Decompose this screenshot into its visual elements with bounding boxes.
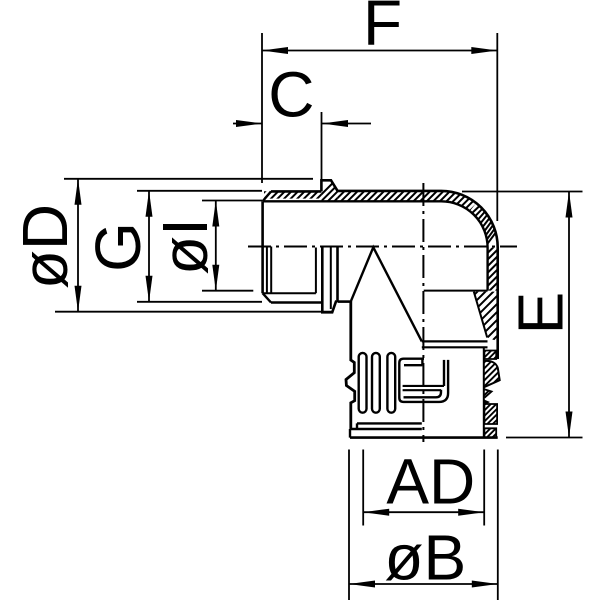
svg-text:G: G xyxy=(82,222,154,272)
svg-text:F: F xyxy=(363,0,402,59)
svg-text:AD: AD xyxy=(386,446,475,518)
svg-text:øI: øI xyxy=(149,218,221,275)
svg-text:øD: øD xyxy=(9,204,81,289)
svg-text:E: E xyxy=(505,292,577,335)
svg-text:øB: øB xyxy=(384,522,466,594)
svg-text:C: C xyxy=(268,59,314,131)
